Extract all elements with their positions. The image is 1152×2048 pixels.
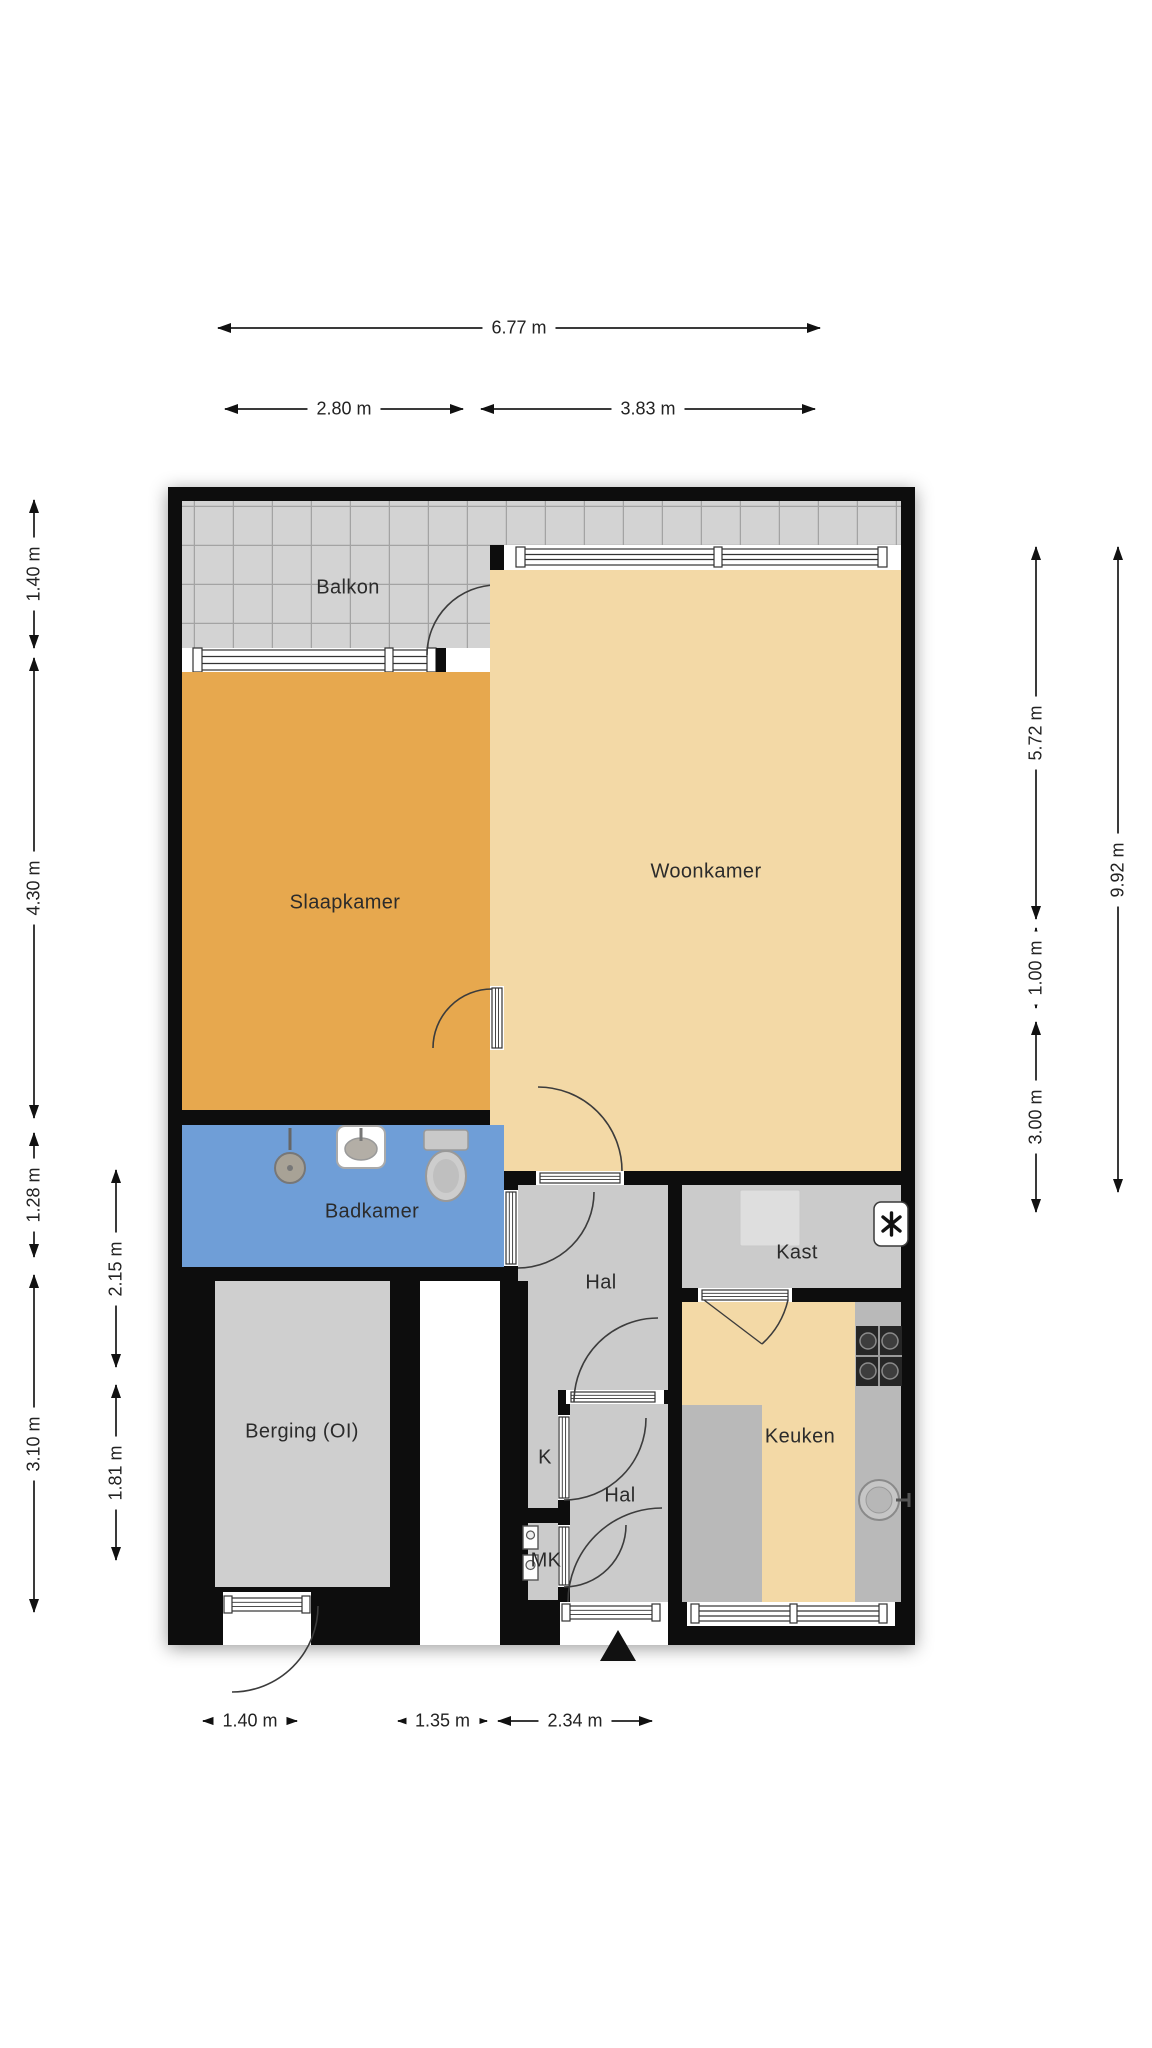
dimension-bottom-2: 1.35 m <box>398 1720 487 1722</box>
door-berging <box>223 1592 318 1692</box>
room-label-slaapkamer: Slaapkamer <box>290 892 401 915</box>
dimension-left-inner-1: 2.15 m <box>115 1170 117 1367</box>
room-balkon-strip <box>490 501 901 548</box>
room-label-closet-k: K <box>538 1447 552 1470</box>
room-label-kast: Kast <box>776 1242 818 1265</box>
room-closet-k <box>528 1367 558 1508</box>
window <box>687 1602 895 1626</box>
window <box>516 547 887 567</box>
toilet-icon <box>424 1130 468 1201</box>
dimension-left-inner-2: 1.81 m <box>115 1385 117 1560</box>
boiler-icon <box>740 1190 800 1246</box>
dimension-top-right: 3.83 m <box>481 408 815 410</box>
dimension-left-slaapkamer: 4.30 m <box>33 658 35 1118</box>
room-label-hal-upper: Hal <box>585 1272 616 1295</box>
room-label-mk: MK <box>531 1550 562 1573</box>
kitchen-counter <box>682 1405 762 1602</box>
dimension-right-woonkamer: 5.72 m <box>1035 547 1037 919</box>
floorplan-canvas: Balkon Slaapkamer Woonkamer Badkamer Hal… <box>0 0 1152 2048</box>
room-label-berging: Berging (OI) <box>245 1421 359 1444</box>
wall-stub <box>436 648 446 672</box>
dimension-right-total: 9.92 m <box>1117 547 1119 1192</box>
room-label-badkamer: Badkamer <box>325 1201 419 1224</box>
dimension-top-total: 6.77 m <box>218 327 820 329</box>
dimension-right-keuken: 3.00 m <box>1035 1022 1037 1212</box>
room-label-keuken: Keuken <box>765 1426 835 1449</box>
window <box>193 648 436 672</box>
room-label-balkon: Balkon <box>316 577 380 600</box>
dimension-right-kast: 1.00 m <box>1035 928 1037 1008</box>
stove-icon <box>856 1326 902 1386</box>
dimension-left-bottom: 3.10 m <box>33 1275 35 1612</box>
floorplan-drawing <box>0 0 1152 2048</box>
dimension-bottom-3: 2.34 m <box>498 1720 652 1722</box>
ventilation-unit-icon <box>874 1202 908 1246</box>
dimension-left-badkamer: 1.28 m <box>33 1133 35 1257</box>
dimension-top-left: 2.80 m <box>225 408 463 410</box>
room-label-woonkamer: Woonkamer <box>650 861 761 884</box>
exterior-notch <box>420 1281 500 1645</box>
dimension-left-balkon: 1.40 m <box>33 500 35 648</box>
washbasin-icon <box>337 1126 385 1168</box>
room-label-hal-lower: Hal <box>604 1485 635 1508</box>
dimension-bottom-1: 1.40 m <box>203 1720 297 1722</box>
